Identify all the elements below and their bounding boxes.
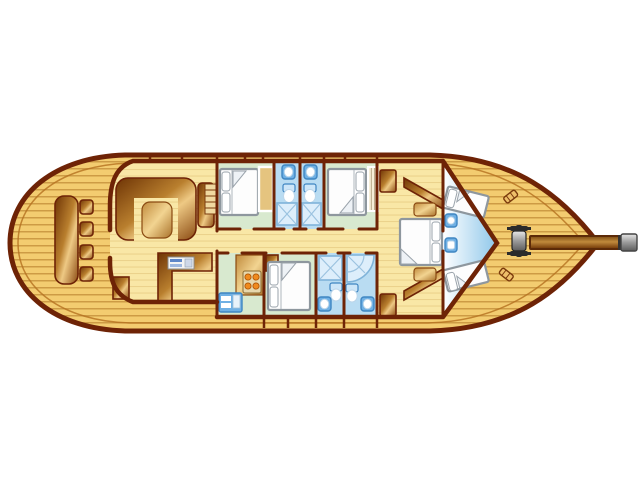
washbasin xyxy=(318,297,331,311)
deck-seat xyxy=(80,200,93,214)
guest-cabin-3 xyxy=(266,255,310,310)
double-bed xyxy=(328,169,366,215)
toilet xyxy=(445,214,457,227)
wardrobe xyxy=(380,294,396,316)
deck-seat xyxy=(80,267,93,281)
deck-plan-svg xyxy=(0,0,640,480)
deck-seat xyxy=(80,222,93,236)
washbasin xyxy=(445,238,457,252)
double-bed xyxy=(400,219,442,265)
guest-cabin-2 xyxy=(328,167,378,215)
toilet xyxy=(346,284,358,302)
wardrobe xyxy=(259,167,273,211)
washbasin xyxy=(282,165,295,179)
salon-table xyxy=(142,202,172,238)
deck-plan-canvas xyxy=(0,0,640,480)
toilet xyxy=(304,184,316,203)
dining-table xyxy=(55,196,78,284)
shower-tray xyxy=(277,203,297,225)
bowsprit xyxy=(530,234,637,251)
shower-tray xyxy=(319,256,342,280)
nightstand xyxy=(414,203,436,216)
companionway-steps xyxy=(205,184,216,214)
galley-sink xyxy=(219,293,242,312)
guest-cabin-1 xyxy=(220,167,273,215)
stove xyxy=(243,271,261,293)
washbasin xyxy=(361,297,374,311)
double-bed xyxy=(268,262,310,310)
instrument-panel xyxy=(168,257,194,269)
wardrobe xyxy=(380,170,396,192)
washbasin xyxy=(304,165,317,179)
toilet xyxy=(330,283,342,301)
bowsprit-tip xyxy=(621,234,637,251)
nightstand xyxy=(414,268,436,281)
deck-seat xyxy=(80,245,93,259)
shower-tray xyxy=(302,203,321,225)
toilet xyxy=(283,184,295,203)
double-bed xyxy=(220,169,258,215)
